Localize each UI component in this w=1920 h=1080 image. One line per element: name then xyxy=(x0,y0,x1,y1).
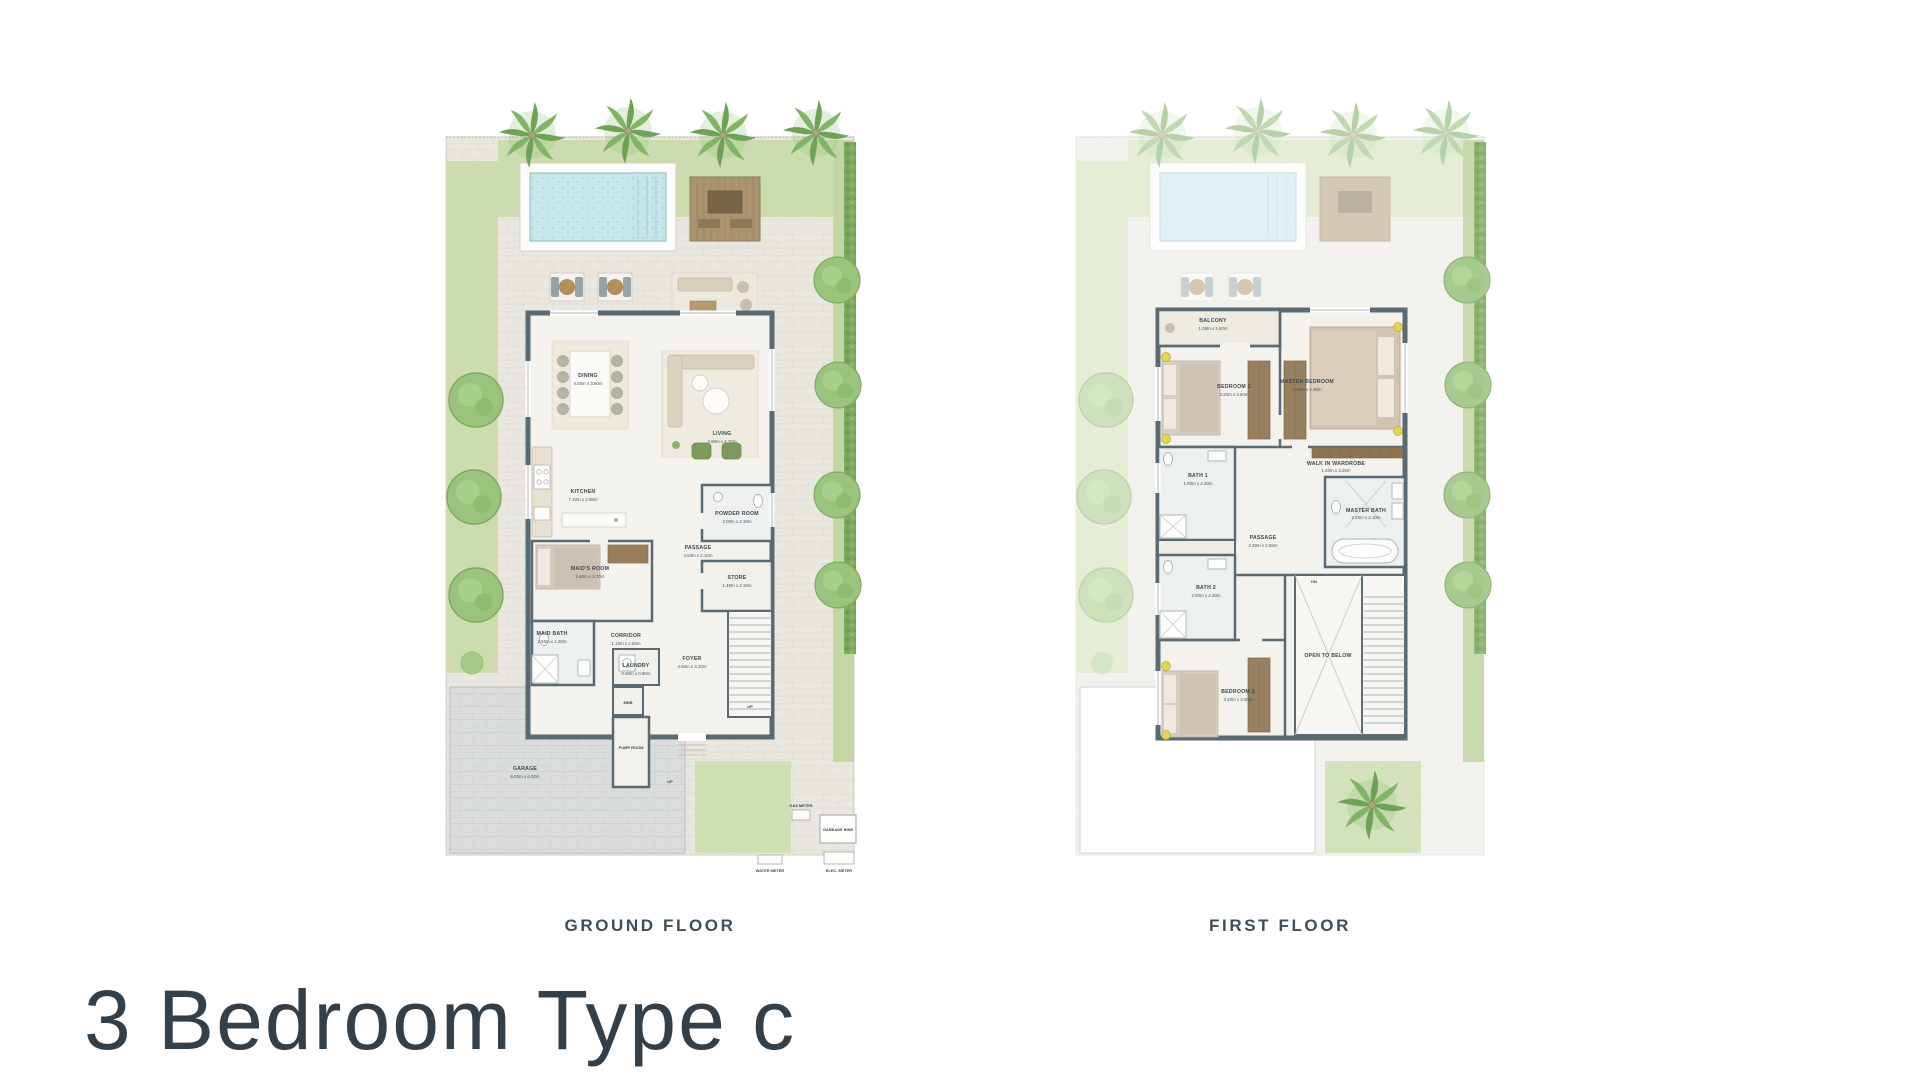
room-dim-laundry: 0.90m x 0.80m xyxy=(621,671,650,676)
patio-bistro-set xyxy=(598,273,632,301)
first-floor-plan: BALCONY 1.08m x 3.60m BEDROOM 1 3.20m x … xyxy=(1076,98,1491,855)
room-dim-powder: 2.00m x 2.10m xyxy=(722,519,751,524)
room-dim-passage: 4.50m x 2.10m xyxy=(683,553,712,558)
elec-meter-label: ELEC. METER xyxy=(826,868,852,873)
tree-icon xyxy=(815,562,861,608)
room-label-maids-room: MAID'S ROOM xyxy=(571,566,609,572)
wardrobe-closets xyxy=(1312,447,1403,458)
room-label-garage: GARAGE xyxy=(513,766,538,772)
first-floor-caption: FIRST FLOOR xyxy=(1070,916,1490,936)
room-dim-balcony: 1.08m x 3.60m xyxy=(1198,326,1227,331)
page-title: 3 Bedroom Type c xyxy=(84,972,796,1069)
room-label-living: LIVING xyxy=(713,431,732,437)
tree-icon xyxy=(814,472,860,518)
room-dim-bedroom1: 3.20m x 3.60m xyxy=(1219,392,1248,397)
patio-bistro-set xyxy=(550,273,584,301)
tree-icon xyxy=(449,373,503,427)
room-dim-bath2: 2.90m x 2.30m xyxy=(1191,593,1220,598)
room-label-foyer: FOYER xyxy=(682,656,701,662)
room-label-balcony: BALCONY xyxy=(1199,318,1227,324)
floorplan-canvas: DINING 4.50m x 3.60m LIVING 4.80m x 4.70… xyxy=(0,0,1920,1080)
room-dim-bedroom2: 3.40m x 3.60m xyxy=(1223,697,1252,702)
entry-up-label: UP xyxy=(667,779,673,784)
garbage-bins-label: GARBAGE BINS xyxy=(823,827,854,832)
room-dim-store: 1.45m x 2.10m xyxy=(722,583,751,588)
room-label-bedroom1: BEDROOM 1 xyxy=(1217,384,1251,390)
room-dim-kitchen: 7.40m x 3.95m xyxy=(568,497,597,502)
ground-floor-caption: GROUND FLOOR xyxy=(440,916,860,936)
room-label-store: STORE xyxy=(727,575,746,581)
swimming-pool xyxy=(520,163,676,251)
room-label-passage: PASSAGE xyxy=(1250,535,1277,541)
room-label-pump-room: PUMP ROOM xyxy=(618,745,644,750)
bbq-deck xyxy=(690,177,760,241)
room-label-bath1: BATH 1 xyxy=(1188,473,1208,479)
room-label-maid-bath: MAID BATH xyxy=(537,631,568,637)
balcony-chair xyxy=(1165,323,1175,333)
room-label-master-bath: MASTER BATH xyxy=(1346,508,1386,514)
room-dim-dining: 4.50m x 3.60m xyxy=(573,381,602,386)
bedroom1-furniture xyxy=(1162,353,1271,444)
room-dim-walk-in-wardrobe: 1.20m x 3.25m xyxy=(1321,468,1350,473)
tree-icon xyxy=(447,470,501,524)
water-meter-label: WATER METER xyxy=(756,868,785,873)
room-dim-garage: 6.00m x 6.00m xyxy=(510,774,539,779)
garden-corner xyxy=(695,761,791,853)
gas-meter-label: GAS METER xyxy=(789,803,812,808)
stairs-dn-label: DN xyxy=(1311,579,1317,584)
room-label-master-bedroom: MASTER BEDROOM xyxy=(1280,379,1334,385)
room-dim-master-bedroom: 3.50m x 4.45m xyxy=(1292,387,1321,392)
tree-icon xyxy=(814,257,860,303)
room-label-powder: POWDER ROOM xyxy=(715,511,759,517)
room-dim-foyer: 4.60m x 3.20m xyxy=(677,664,706,669)
shrub-icon xyxy=(461,652,483,674)
room-label-bedroom2: BEDROOM 2 xyxy=(1221,689,1255,695)
room-label-corridor: CORRIDOR xyxy=(611,633,641,639)
tree-icon xyxy=(449,568,503,622)
ground-floor-plan: DINING 4.50m x 3.60m LIVING 4.80m x 4.70… xyxy=(446,98,861,873)
room-label-mdb: MDB xyxy=(623,700,632,705)
room-dim-maid-bath: 2.50m x 1.20m xyxy=(537,639,566,644)
room-dim-bath1: 1.90m x 2.30m xyxy=(1183,481,1212,486)
room-dim-corridor: 1.10m x 2.55m xyxy=(611,641,640,646)
room-label-laundry: LAUNDRY xyxy=(623,663,650,669)
room-label-open-to-below: OPEN TO BELOW xyxy=(1304,653,1351,659)
room-label-walk-in-wardrobe: WALK IN WARDROBE xyxy=(1307,461,1365,467)
room-label-kitchen: KITCHEN xyxy=(571,489,596,495)
room-dim-passage: 2.40m x 2.65m xyxy=(1248,543,1277,548)
tree-icon xyxy=(815,362,861,408)
room-label-dining: DINING xyxy=(578,373,598,379)
stairs-up-label: UP xyxy=(747,704,753,709)
room-label-bath2: BATH 2 xyxy=(1196,585,1216,591)
room-dim-master-bath: 3.45m x 2.10m xyxy=(1351,515,1380,520)
room-label-passage: PASSAGE xyxy=(685,545,712,551)
room-dim-living: 4.80m x 4.70m xyxy=(707,439,736,444)
room-dim-maids-room: 2.60m x 3.70m xyxy=(575,574,604,579)
